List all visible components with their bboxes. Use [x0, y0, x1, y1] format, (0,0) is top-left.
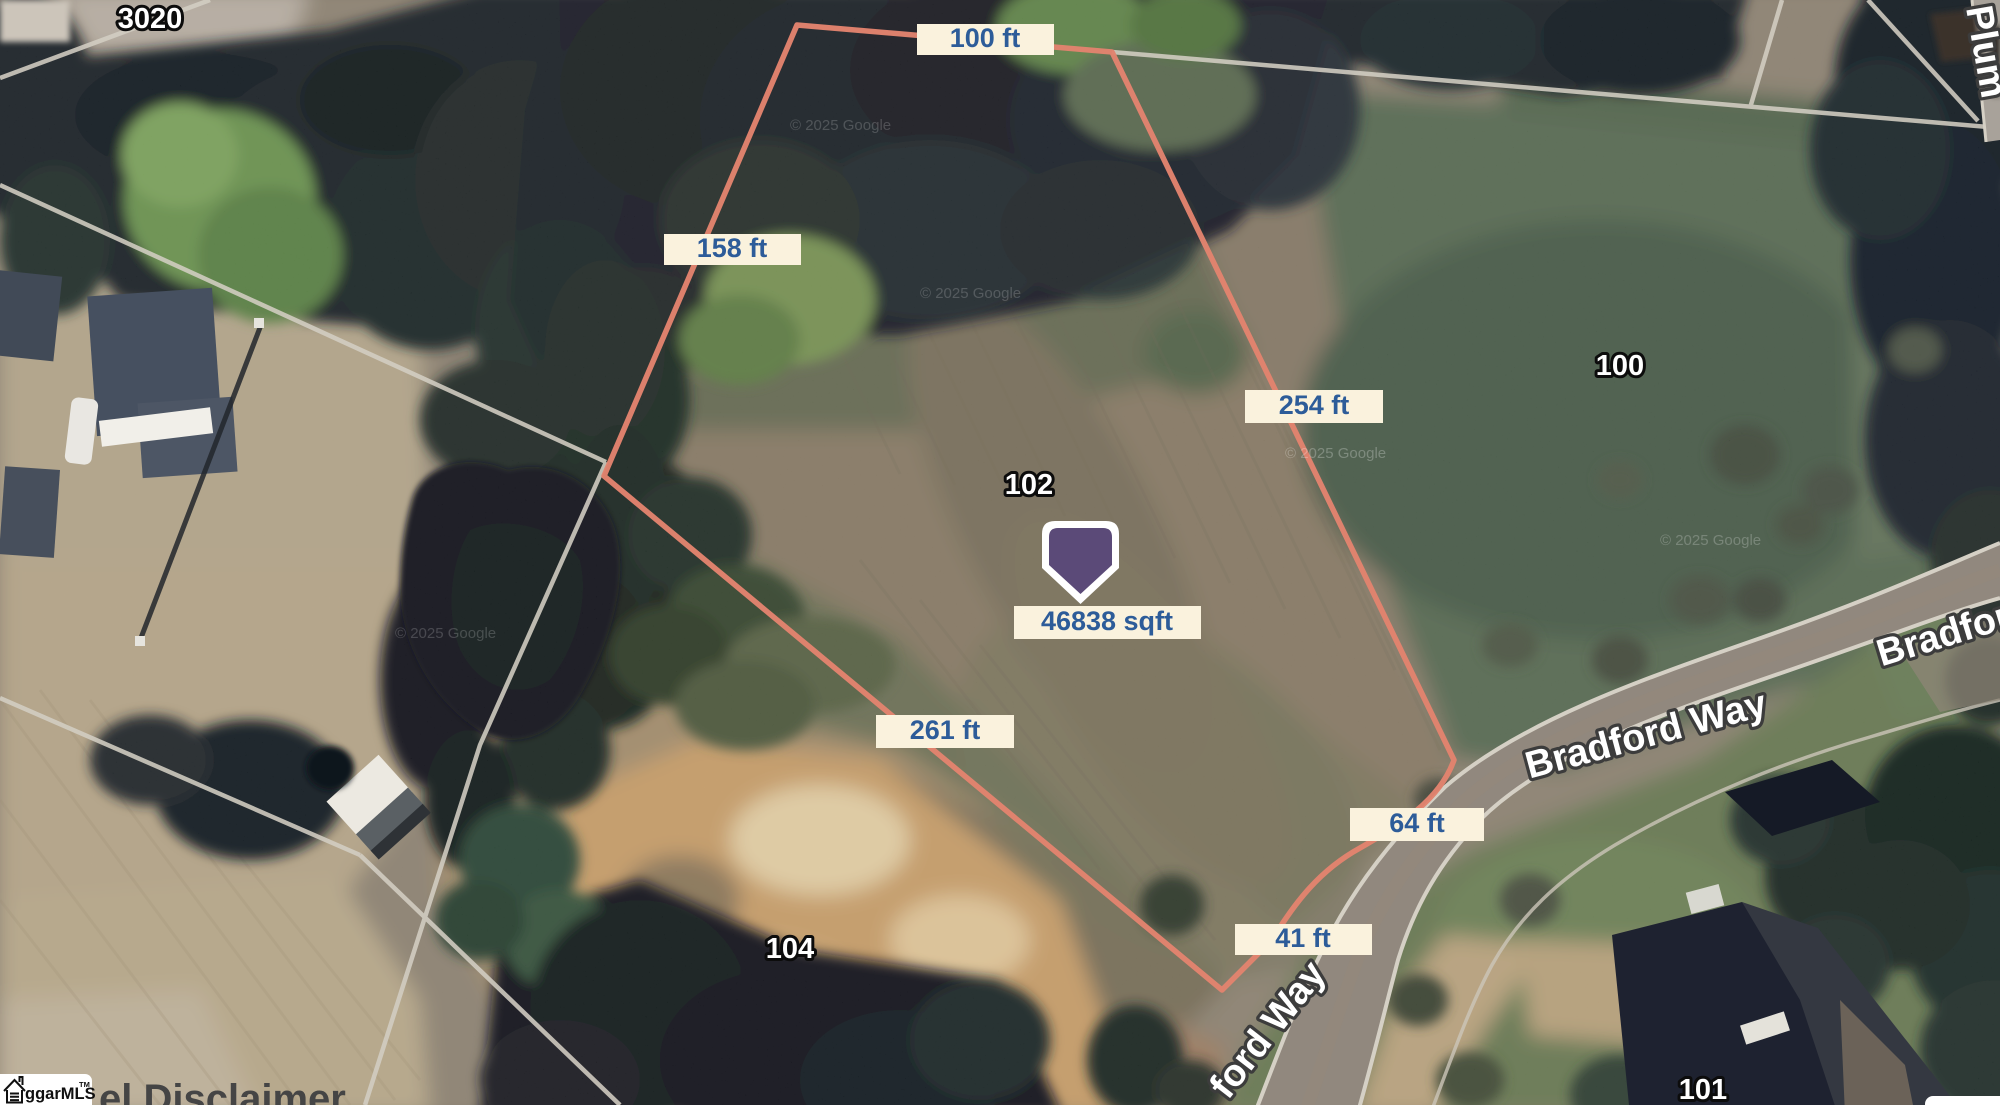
svg-text:© 2025 Google: © 2025 Google	[395, 625, 496, 642]
svg-text:101: 101	[1679, 1074, 1727, 1105]
svg-text:261 ft: 261 ft	[910, 715, 981, 745]
svg-text:3020: 3020	[118, 3, 183, 35]
svg-text:46838 sqft: 46838 sqft	[1041, 606, 1173, 636]
svg-text:100 ft: 100 ft	[950, 23, 1021, 53]
svg-text:104: 104	[766, 933, 814, 965]
svg-text:102: 102	[1005, 469, 1053, 501]
svg-text:© 2025 Google: © 2025 Google	[920, 285, 1021, 302]
svg-text:© 2025 Google: © 2025 Google	[1285, 445, 1386, 462]
svg-text:TM: TM	[79, 1080, 90, 1089]
svg-text:158 ft: 158 ft	[697, 233, 768, 263]
svg-text:© 2025 Google: © 2025 Google	[1660, 532, 1761, 549]
svg-text:el Disclaimer: el Disclaimer	[99, 1077, 346, 1105]
svg-text:41 ft: 41 ft	[1275, 923, 1331, 953]
svg-text:100: 100	[1596, 350, 1644, 382]
svg-text:64 ft: 64 ft	[1389, 808, 1445, 838]
svg-text:254 ft: 254 ft	[1279, 390, 1350, 420]
svg-text:© 2025 Google: © 2025 Google	[790, 117, 891, 134]
